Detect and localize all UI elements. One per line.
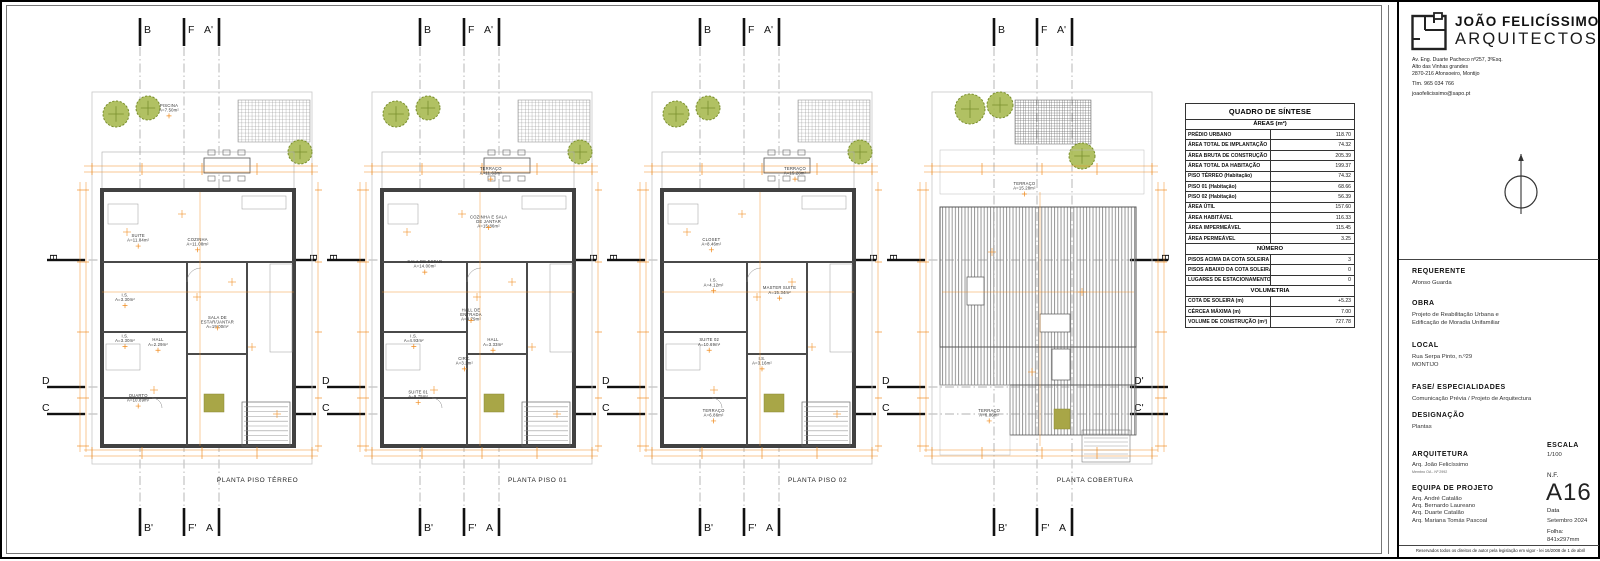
section-marker-letter: B [424,24,431,36]
section-marker-letter: B' [704,522,713,534]
section-tick [218,508,221,536]
pergola-hatch [518,100,590,142]
section-tick [1036,508,1039,536]
quadro-row-label: PISOS ACIMA DA COTA SOLEIRA [1186,254,1271,264]
equipa-lines: Arq. André CatalãoArq. Bernardo Laureano… [1412,496,1487,525]
section-tick [699,508,702,536]
section-marker-letter: E [327,254,339,261]
quadro-group-header: VOLUMETRIA [1186,285,1355,296]
room-label: TERRAÇOA=6.86m² [703,408,725,418]
floor-plan-4: BFA'B'F'AEDCED'C'TERRAÇOA=15.28m²TERRAÇO… [882,2,1174,561]
section-line: Rua Serpa Pinto, n.º29 [1412,353,1472,361]
arquitetura-registration: Membro OA - Nº 2992 [1412,470,1447,474]
plan-title: PLANTA PISO 01 [508,477,567,484]
quadro-de-sintese: QUADRO DE SÍNTESE ÁREAS (m²)PRÉDIO URBAN… [1185,103,1355,328]
chair [798,176,805,181]
firm-name-bold: JOÃO FELICÍSSIMO [1455,14,1599,29]
quadro-group-header: ÁREAS (m²) [1186,119,1355,130]
section-marker-letter: F [188,24,194,36]
section-marker-letter: C [882,402,890,414]
quadro-data-row: ÁREA TOTAL DA HABITAÇÃO199.37 [1186,161,1355,171]
plan-drawing: PISCINAA=7.50m²SUITEA=11.84m²COZINHAA=11… [77,92,322,464]
section-tick [607,386,645,388]
section-tick [498,18,501,46]
section-label: FASE/ ESPECIALIDADES [1412,384,1531,391]
section-marker-letter: B' [998,522,1007,534]
floor-plan-2: BFA'B'F'AEDCED'C'TERRAÇOA=11.63m²COZINHA… [322,2,602,561]
quadro-row-value: 3 [1270,254,1355,264]
section-tick [887,386,925,388]
terrace-outline [940,385,1010,455]
quadro-group-header: NÚMERO [1186,244,1355,255]
titleblock-divider-thin [1388,5,1389,554]
stair-landing [1054,409,1070,429]
section-marker-letter: F' [1041,522,1049,534]
quadro-data-row: ÁREA PERMEÁVEL3.25 [1186,233,1355,243]
section-marker-letter: A [486,522,493,534]
folha-label: Folha: [1547,529,1563,535]
quadro-data-row: ÁREA IMPERMEÁVEL115.45 [1186,223,1355,233]
section-tick [887,413,925,415]
section-marker-letter: A' [764,24,773,36]
stair-landing [204,394,224,412]
section-tick [139,18,142,46]
equipa-member: Arq. André Catalão [1412,496,1487,503]
floor-plan-1: BFA'B'F'AEDCED'C'PISCINAA=7.50m²SUITEA=1… [42,2,322,561]
quadro-row-label: ÁREA TOTAL DE IMPLANTAÇÃO [1186,140,1271,150]
room-label: PISCINAA=7.50m² [159,103,179,113]
quadro-row-value: 74.32 [1270,140,1355,150]
section-marker-letter: C [602,402,610,414]
section-tick [1071,18,1074,46]
section-marker-letter: A [206,522,213,534]
equipa-member: Arq. Mariana Tomás Pascoal [1412,518,1487,525]
quadro-data-row: PISOS ACIMA DA COTA SOLEIRA3 [1186,254,1355,264]
section-marker-letter: F [468,24,474,36]
building-walls [102,190,294,446]
quadro-data-row: ÁREA ÚTIL157.60 [1186,202,1355,212]
section-label: OBRA [1412,300,1500,307]
chair [208,176,215,181]
plan-title: PLANTA COBERTURA [1057,477,1134,484]
quadro-row-value: 56.39 [1270,192,1355,202]
equipa-label: EQUIPA DE PROJETO [1412,485,1494,492]
section-marker-letter: A' [484,24,493,36]
section-marker-letter: E [1159,254,1171,261]
quadro-row-value: 68.66 [1270,181,1355,191]
section-tick [743,18,746,46]
section-label: DESIGNAÇÃO [1412,412,1464,419]
room-label: SUITE 01A=9.75m² [408,389,428,399]
quadro-data-row: LUGARES DE ESTACIONAMENTO0 [1186,275,1355,285]
section-tick [47,413,85,415]
section-marker-letter: F [1041,24,1047,36]
section-marker-letter: B [144,24,151,36]
quadro-data-row: PISO TÉRREO (Habitação)74.32 [1186,171,1355,181]
quadro-row-label: ÁREA PERMEÁVEL [1186,233,1271,243]
chair [488,150,495,155]
section-tick [463,508,466,536]
section-lines: Rua Serpa Pinto, n.º29MONTIJO [1412,353,1472,369]
title-block: JOÃO FELICÍSSIMO ARQUITECTOS Av. Eng. Du… [1397,2,1600,557]
plan-drawing: TERRAÇOA=11.63m²COZINHA E SALADE JANTARA… [357,92,602,464]
section-marker-letter: D [322,375,330,387]
section-line: Projeto de Reabilitação Urbana e [1412,311,1500,319]
room-marker-cross [1022,192,1027,197]
quadro-row-value: 199.37 [1270,161,1355,171]
section-marker-letter: B [704,24,711,36]
chair [223,150,230,155]
pergola-hatch [238,100,310,142]
terrace-outline [662,152,854,190]
quadro-row-label: PISOS ABAIXO DA COTA SOLEIRA [1186,265,1271,275]
chair [798,150,805,155]
quadro-row-label: PRÉDIO URBANO [1186,130,1271,140]
escala-value: 1/100 [1547,452,1562,458]
quadro-row-value: 118.70 [1270,130,1355,140]
quadro-row-label: CÉRCEA MÁXIMA (m) [1186,306,1271,316]
firm-logo-icon [1410,12,1450,52]
section-tick [419,508,422,536]
room-label: TERRAÇOA=15.28m² [1013,181,1036,191]
address-line: Av. Eng. Duarte Pacheco nº257, 3ºEsq. [1412,57,1503,64]
chair [238,150,245,155]
quadro-row-value: 205.39 [1270,150,1355,160]
section-line: Afonso Guarda [1412,279,1466,287]
room-label: TERRAÇOA=11.63m² [480,166,503,176]
section-marker-letter: B [998,24,1005,36]
data-label: Data [1547,508,1559,514]
section-line: MONTIJO [1412,361,1472,369]
chair [223,176,230,181]
room-label: COZINHAA=11.08m² [187,237,209,247]
quadro-group-row: NÚMERO [1186,244,1355,255]
section-marker-letter: B' [144,522,153,534]
skylight [967,277,984,305]
chair [768,176,775,181]
section-marker-letter: A [1059,522,1066,534]
section-lines: Comunicação Prévia / Projeto de Arquitec… [1412,395,1531,403]
quadro-title: QUADRO DE SÍNTESE [1186,104,1355,120]
section-tick [993,508,996,536]
chair [238,176,245,181]
section-tick [183,18,186,46]
roof-slab [1010,385,1136,435]
nf-label: N.F. [1547,472,1558,479]
quadro-data-row: VOLUME DE CONSTRUÇÃO (m³)727.78 [1186,317,1355,327]
section-marker-letter: D [602,375,610,387]
quadro-row-label: PISO 01 (Habitação) [1186,181,1271,191]
stair-landing [484,394,504,412]
arquitetura-name: Arq. João Felicíssimo [1412,462,1468,468]
quadro-row-label: PISO 02 (Habitação) [1186,192,1271,202]
plan-title: PLANTA PISO 02 [788,477,847,484]
quadro-row-label: ÁREA ÚTIL [1186,202,1271,212]
chair [503,176,510,181]
section-label: LOCAL [1412,342,1472,349]
plan-drawing: TERRAÇOA=15.28m²TERRAÇOA=6.86m² [917,92,1167,464]
section-tick [183,508,186,536]
section-marker-letter: B' [424,522,433,534]
section-tick [47,386,85,388]
chair [208,150,215,155]
titleblock-section: LOCALRua Serpa Pinto, n.º29MONTIJO [1412,342,1472,369]
quadro-row-label: LUGARES DE ESTACIONAMENTO [1186,275,1271,285]
section-marker-letter: A' [1057,24,1066,36]
room-label: CLOSETA=8.46m² [701,237,721,247]
quadro-data-row: ÁREA HABITÁVEL116.33 [1186,213,1355,223]
section-tick [778,18,781,46]
section-tick [778,508,781,536]
building-walls [662,190,854,446]
room-label: QUARTOA=10.89m² [127,393,150,403]
section-marker-letter: D [882,375,890,387]
quadro-group-row: ÁREAS (m²) [1186,119,1355,130]
titleblock-section: FASE/ ESPECIALIDADESComunicação Prévia /… [1412,384,1531,403]
quadro-row-label: VOLUME DE CONSTRUÇÃO (m³) [1186,317,1271,327]
copyright-text: Reservados todos os direitos de autor pe… [1399,548,1600,553]
quadro-row-value: 727.78 [1270,317,1355,327]
skylight [1040,314,1070,332]
quadro-row-label: ÁREA TOTAL DA HABITAÇÃO [1186,161,1271,171]
section-marker-letter: F' [748,522,756,534]
room-label: SUITE 02A=10.69m² [698,337,721,347]
quadro-data-row: ÁREA BRUTA DE CONSTRUÇÃO205.39 [1186,150,1355,160]
section-line: Plantas [1412,423,1464,431]
quadro-row-value: 7.00 [1270,306,1355,316]
quadro-data-row: PISO 02 (Habitação)56.39 [1186,192,1355,202]
quadro-row-label: COTA DE SOLEIRA (m) [1186,296,1271,306]
section-marker-letter: E [587,254,599,261]
dining-table [204,158,250,173]
section-label: REQUERENTE [1412,268,1466,275]
firm-address: Av. Eng. Duarte Pacheco nº257, 3ºEsq.Alt… [1412,57,1503,77]
quadro-table: QUADRO DE SÍNTESE ÁREAS (m²)PRÉDIO URBAN… [1185,103,1355,328]
quadro-data-row: PISOS ABAIXO DA COTA SOLEIRA0 [1186,265,1355,275]
pergola-hatch [798,100,870,142]
chair [768,150,775,155]
quadro-row-value: 3.25 [1270,233,1355,243]
plan-title: PLANTA PISO TÉRREO [217,477,298,484]
section-lines: Plantas [1412,423,1464,431]
firm-email: joaofelicissimo@sapo.pt [1412,91,1470,97]
section-tick [327,386,365,388]
stair-landing [764,394,784,412]
arquitetura-label: ARQUITETURA [1412,451,1468,458]
section-marker-letter: F [748,24,754,36]
north-arrow-icon [1491,150,1551,222]
section-tick [419,18,422,46]
terrace-outline [102,152,294,190]
chair [503,150,510,155]
section-marker-letter: D [42,375,50,387]
section-tick [218,18,221,46]
roof-slab [940,347,1136,385]
firm-name-light: ARQUITECTOS [1455,30,1599,49]
firm-phone: Tlm. 965 034 766 [1412,81,1454,87]
section-tick [463,18,466,46]
titleblock-section: OBRAProjeto de Reabilitação Urbana eEdif… [1412,300,1500,327]
titleblock-section: REQUERENTEAfonso Guarda [1412,268,1466,287]
chair [518,176,525,181]
skylight [1052,349,1070,380]
chair [783,176,790,181]
section-lines: Projeto de Reabilitação Urbana eEdificaç… [1412,311,1500,327]
quadro-row-value: 115.45 [1270,223,1355,233]
section-lines: Afonso Guarda [1412,279,1466,287]
quadro-row-value: 74.32 [1270,171,1355,181]
quadro-row-value: 116.33 [1270,213,1355,223]
section-tick [743,508,746,536]
drawing-sheet: BFA'B'F'AEDCED'C'PISCINAA=7.50m²SUITEA=1… [0,0,1600,559]
section-marker-letter: E [307,254,319,261]
quadro-row-label: PISO TÉRREO (Habitação) [1186,171,1271,181]
firm-name-block: JOÃO FELICÍSSIMO ARQUITECTOS [1455,14,1599,49]
equipa-member: Arq. Duarte Catalão [1412,510,1487,517]
escala-label: ESCALA [1547,442,1579,449]
address-line: Alto das Vinhas grandes [1412,64,1503,71]
room-label: TERRAÇOA=6.86m² [978,408,1000,418]
section-tick [1036,18,1039,46]
section-tick [1071,508,1074,536]
section-tick [699,18,702,46]
quadro-data-row: CÉRCEA MÁXIMA (m)7.00 [1186,306,1355,316]
quadro-data-row: ÁREA TOTAL DE IMPLANTAÇÃO74.32 [1186,140,1355,150]
section-line: Edificação de Moradia Unifamiliar [1412,319,1500,327]
quadro-group-row: VOLUMETRIA [1186,285,1355,296]
section-marker-letter: E [887,254,899,261]
quadro-row-value: 0 [1270,275,1355,285]
quadro-data-row: COTA DE SOLEIRA (m)+5.23 [1186,296,1355,306]
terrace-outline [382,152,574,190]
section-marker-letter: A [766,522,773,534]
chair [518,150,525,155]
quadro-data-row: PRÉDIO URBANO118.70 [1186,130,1355,140]
quadro-row-label: ÁREA BRUTA DE CONSTRUÇÃO [1186,150,1271,160]
chair [783,150,790,155]
section-marker-letter: A' [204,24,213,36]
quadro-row-value: 0 [1270,265,1355,275]
section-marker-letter: E [607,254,619,261]
chair [488,176,495,181]
address-line: 2870-216 Afonsoeiro, Montijo [1412,71,1503,78]
floor-plan-3: BFA'B'F'AEDCED'C'TERRAÇOA=15.28m²CLOSETA… [602,2,882,561]
quadro-row-label: ÁREA IMPERMEÁVEL [1186,223,1271,233]
folha-value: 841x297mm [1547,537,1579,543]
section-marker-letter: E [47,254,59,261]
section-tick [993,18,996,46]
section-line: Comunicação Prévia / Projeto de Arquitec… [1412,395,1531,403]
titleblock-rule [1399,259,1599,260]
section-marker-letter: F' [468,522,476,534]
room-marker-cross [793,177,798,182]
copyright-rule [1399,545,1599,546]
pergola-hatch [1015,100,1091,144]
quadro-row-value: 157.60 [1270,202,1355,212]
section-tick [327,413,365,415]
quadro-row-value: +5.23 [1270,296,1355,306]
quadro-data-row: PISO 01 (Habitação)68.66 [1186,181,1355,191]
plan-drawing: TERRAÇOA=15.28m²CLOSETA=8.46m²I.S.A=4.12… [637,92,882,464]
nf-value: A16 [1546,479,1592,507]
section-tick [498,508,501,536]
titleblock-section: DESIGNAÇÃOPlantas [1412,412,1464,431]
section-tick [139,508,142,536]
data-value: Setembro 2024 [1547,518,1587,524]
equipa-member: Arq. Bernardo Laureano [1412,503,1487,510]
room-label: TERRAÇOA=15.28m² [784,166,807,176]
room-marker-cross [167,113,172,118]
section-marker-letter: C [42,402,50,414]
quadro-row-label: ÁREA HABITÁVEL [1186,213,1271,223]
section-marker-letter: C [322,402,330,414]
section-marker-letter: F' [188,522,196,534]
section-marker-letter: E [867,254,879,261]
room-marker-cross [987,418,992,423]
section-tick [607,413,645,415]
